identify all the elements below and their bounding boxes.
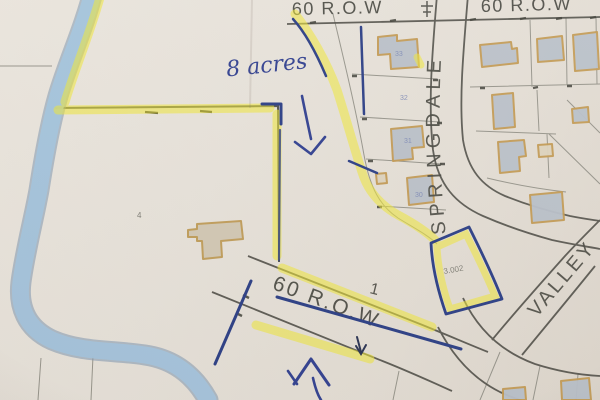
plat-map-canvas: 60 R.O.W 60 R.O.W 60 R.O.W SPRINGDALE VA…: [0, 0, 600, 400]
house-footprint: [480, 42, 518, 67]
house-footprint: [498, 140, 526, 173]
house-footprint: [561, 378, 591, 400]
lot-number-1: 1: [368, 280, 381, 299]
wedge-acreage-label: 3.002: [443, 264, 465, 276]
house-footprint: [530, 192, 564, 223]
shed-footprint: [376, 173, 387, 184]
valley-road-label: VALLEY: [524, 237, 600, 321]
creek-marker: [20, 0, 208, 400]
house-footprint: [503, 387, 526, 400]
highlight-small-blob: [417, 57, 421, 65]
highlight-north-boundary: [58, 108, 270, 110]
plat-map-photo: 60 R.O.W 60 R.O.W 60 R.O.W SPRINGDALE VA…: [0, 0, 600, 400]
lot-number-33: 33: [395, 51, 403, 58]
springdale-label-text: SPRINGDALE: [423, 54, 451, 235]
down-arrow-annotation: [295, 96, 325, 154]
lot-number-32: 32: [400, 95, 408, 102]
up-arrow-annotation: [288, 359, 329, 400]
house-footprint: [537, 36, 564, 62]
creek-highlight: [20, 0, 208, 400]
pole-symbol-icon: [421, 1, 433, 17]
valley-label-text: VALLEY: [524, 237, 600, 321]
parcel-boundary-printed: [55, 106, 279, 262]
handwritten-acreage-note: 8 acres: [225, 49, 308, 82]
up-arrow-barb: [288, 371, 297, 384]
house-footprint: [572, 107, 589, 123]
up-arrow-stem: [313, 378, 321, 400]
house-footprint-main-parcel: [188, 221, 243, 259]
house-footprint: [492, 93, 515, 129]
up-arrow-chevron: [294, 359, 329, 385]
pen-southwest-line: [215, 281, 251, 364]
house-footprint: [573, 32, 599, 71]
pen-east-boundary: [279, 130, 280, 260]
springdale-road-label: SPRINGDALE: [423, 54, 451, 235]
down-arrow-shaft: [302, 96, 311, 139]
lot-number-31: 31: [404, 138, 412, 145]
reference-number-4: 4: [137, 211, 142, 220]
lot-number-30: 30: [415, 192, 423, 199]
row-label-top-right: 60 R.O.W: [481, 0, 573, 16]
paper-fold-crease: [250, 0, 252, 108]
pen-springdale-vertical: [361, 27, 364, 114]
row-label-top-left: 60 R.O.W: [292, 0, 383, 19]
highlight-road-lower: [256, 325, 370, 359]
shed-footprint: [538, 144, 553, 157]
